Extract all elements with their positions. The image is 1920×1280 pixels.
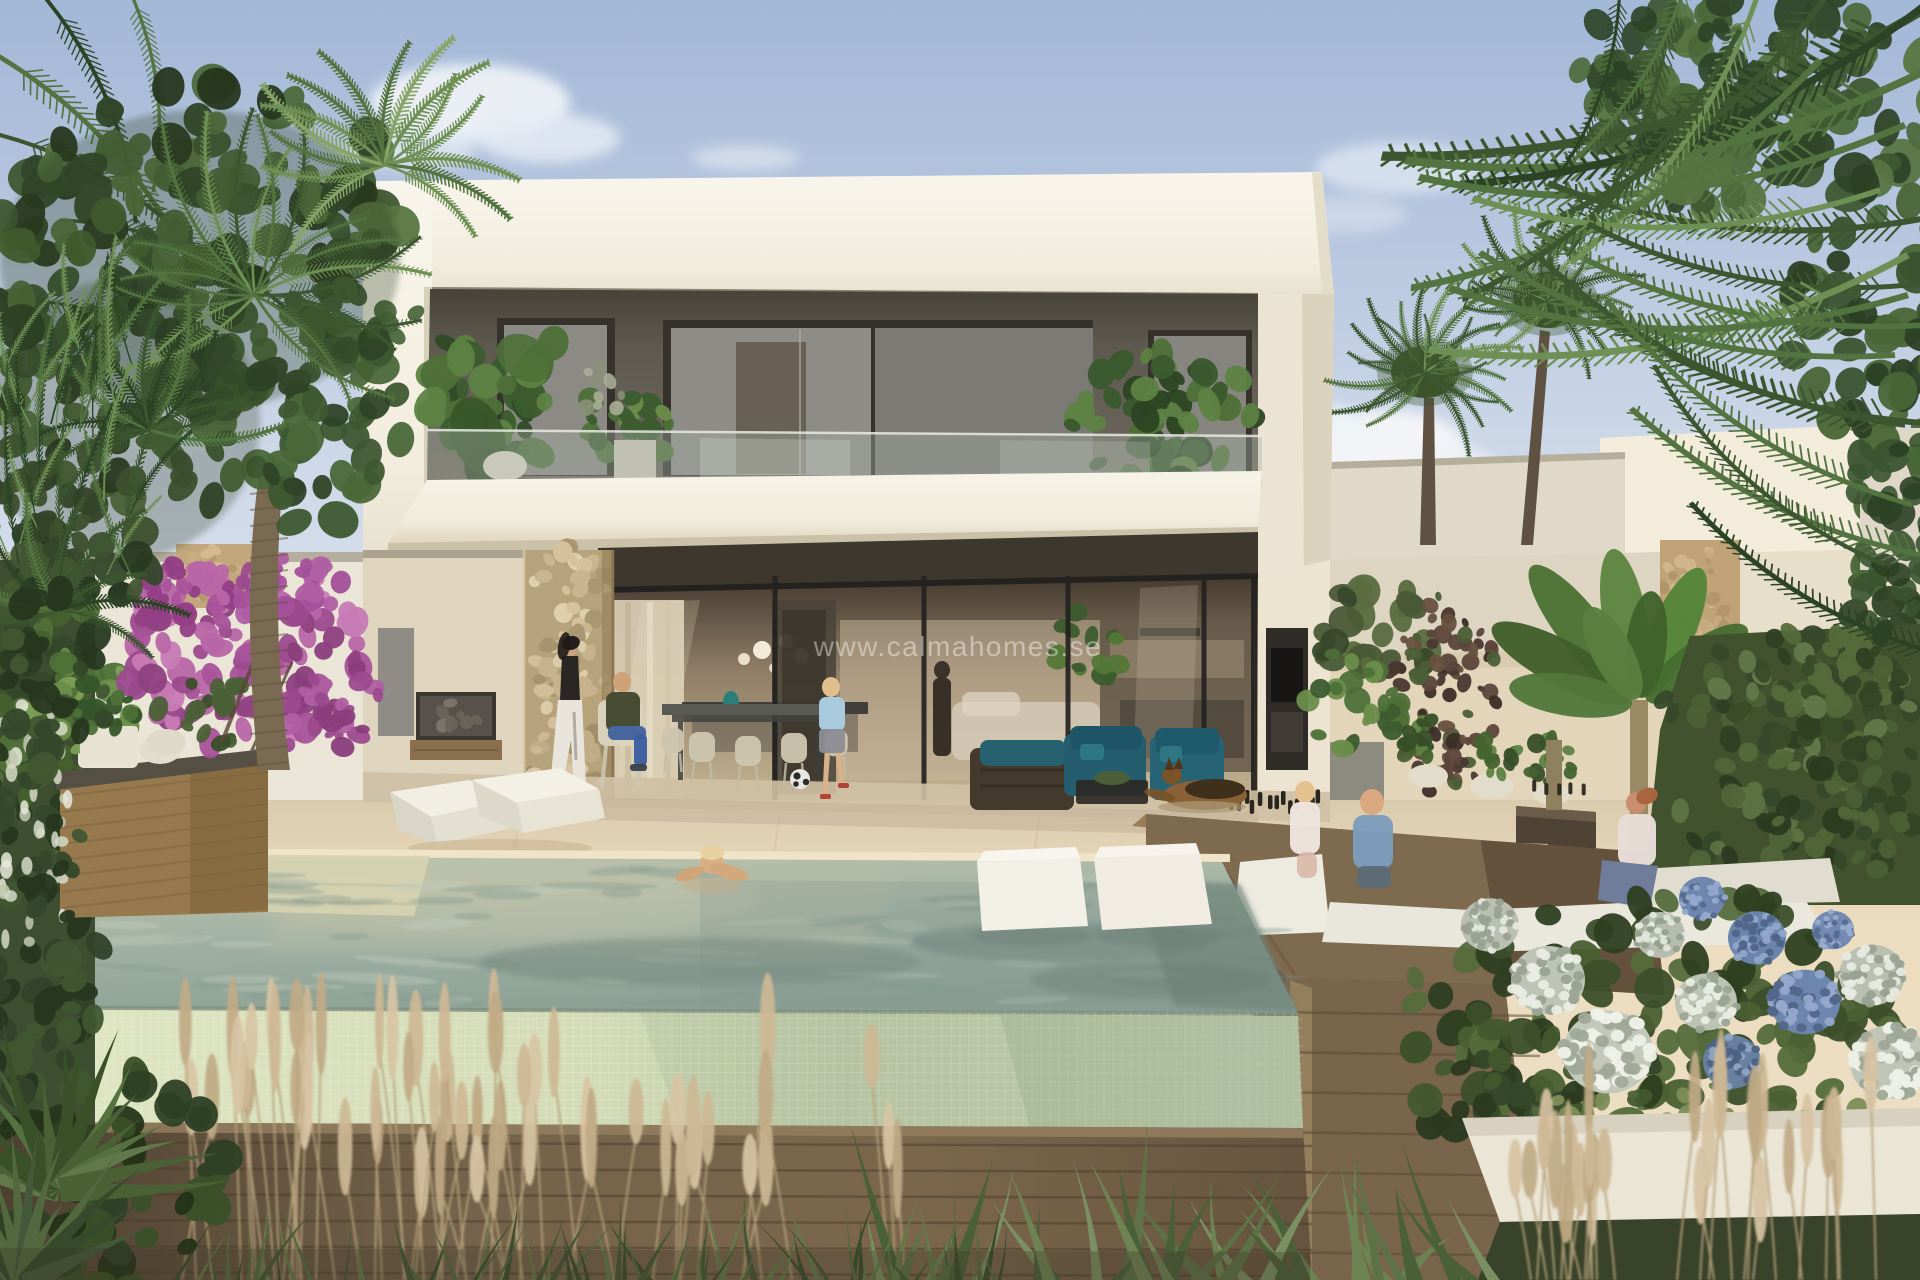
svg-text:www.calmahomes.se: www.calmahomes.se [813, 631, 1102, 662]
